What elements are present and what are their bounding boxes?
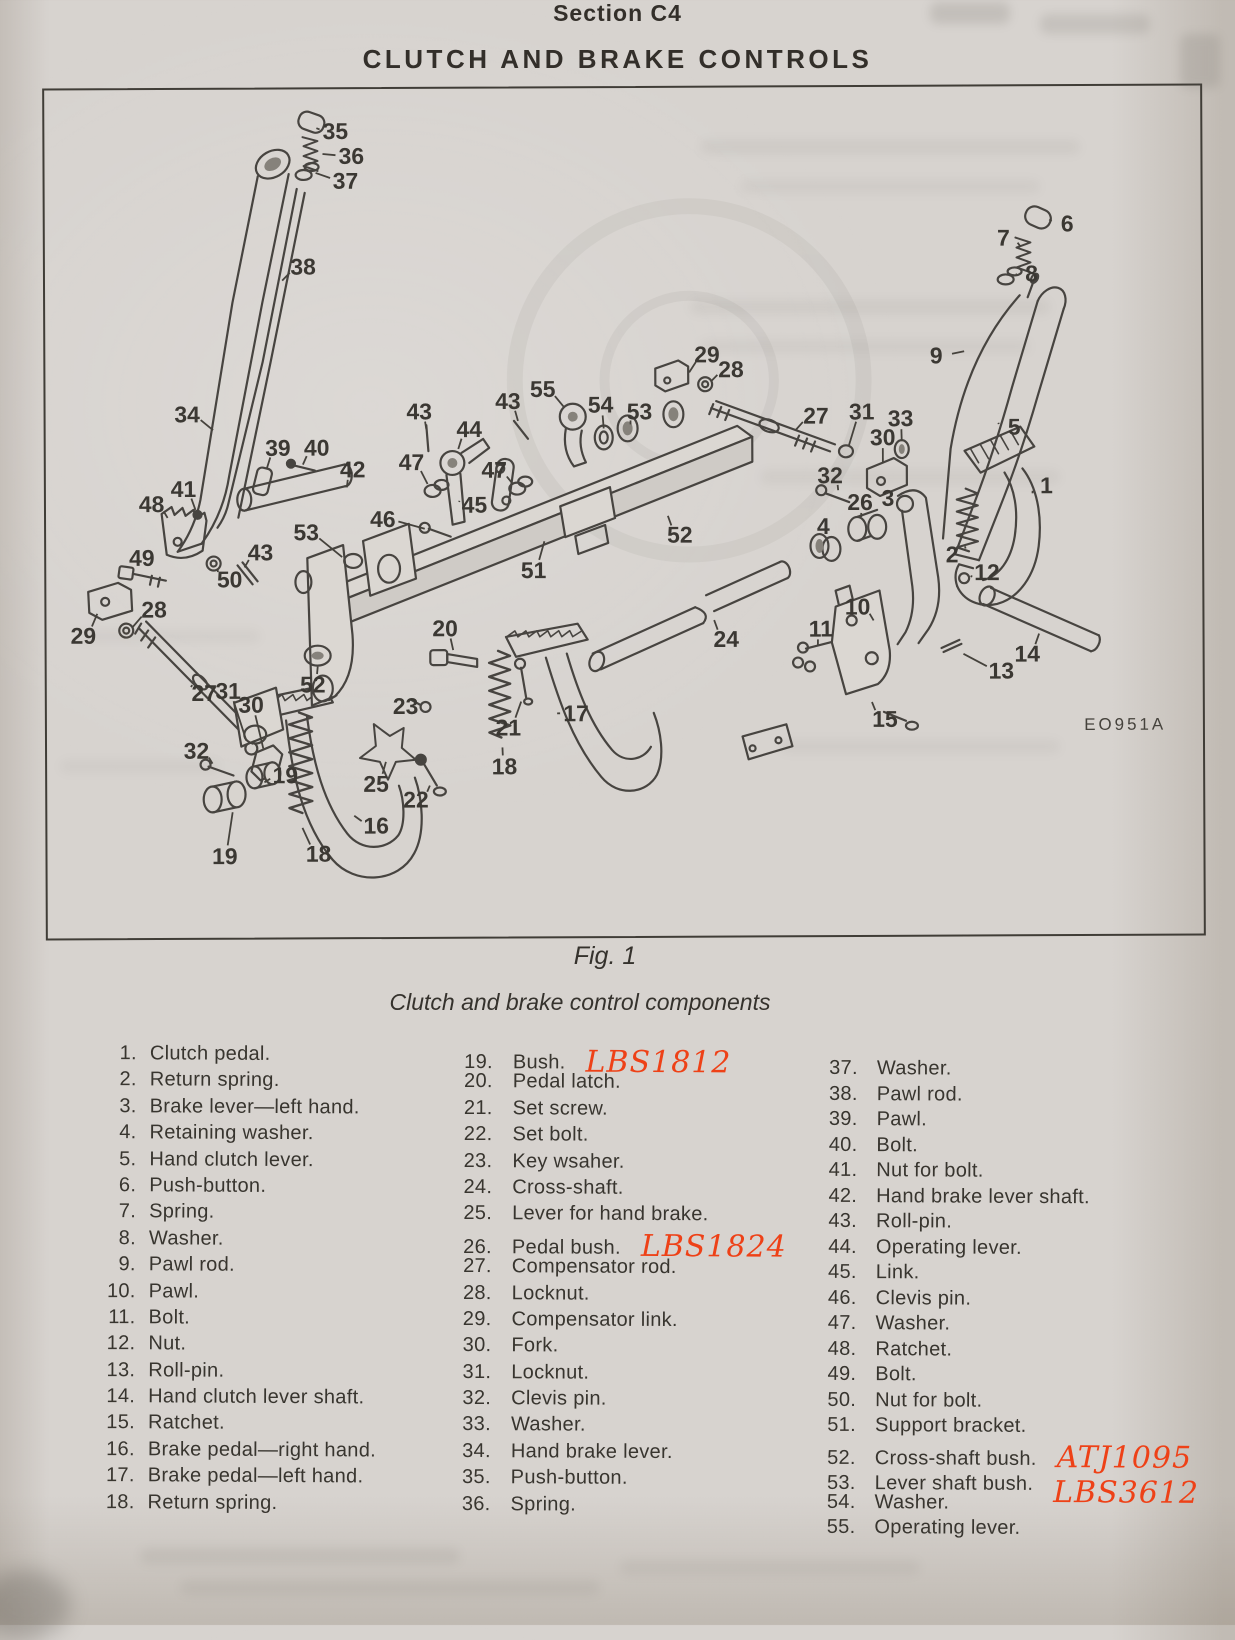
part-label: Lever for hand brake. <box>512 1203 709 1227</box>
handwritten-part-code: LBS1812 <box>585 1048 731 1079</box>
part-label: Pawl. <box>877 1108 928 1131</box>
part-number: 2. <box>91 1068 137 1091</box>
parts-item: 32.Clevis pin. <box>445 1387 786 1415</box>
part-label: Compensator link. <box>511 1308 677 1332</box>
parts-item: 38.Pawl rod. <box>812 1082 1202 1110</box>
part-number: 45. <box>811 1261 857 1284</box>
part-number: 30. <box>445 1334 491 1357</box>
part-label: Retaining washer. <box>149 1121 313 1145</box>
part-number: 27. <box>446 1255 492 1278</box>
part-label: Washer. <box>875 1491 950 1514</box>
part-label: Hand brake lever. <box>511 1440 673 1464</box>
part-number: 55. <box>809 1516 855 1539</box>
part-label: Clevis pin. <box>511 1387 607 1411</box>
part-label: Hand brake lever shaft. <box>876 1185 1090 1209</box>
parts-list: 1.Clutch pedal.2.Return spring.3.Brake l… <box>0 0 1235 1631</box>
parts-item: 26.Pedal bush.LBS1824 <box>446 1229 787 1257</box>
part-number: 28. <box>446 1281 492 1304</box>
parts-item: 34.Hand brake lever. <box>445 1440 786 1468</box>
part-label: Return spring. <box>150 1069 280 1093</box>
parts-item: 16.Brake pedal—right hand. <box>89 1438 376 1466</box>
parts-item: 31.Locknut. <box>445 1361 786 1389</box>
part-label: Bolt. <box>875 1363 917 1386</box>
part-number: 25. <box>446 1202 492 1225</box>
part-number: 9. <box>90 1253 136 1276</box>
part-label: Washer. <box>149 1227 224 1250</box>
parts-item: 24.Cross-shaft. <box>446 1176 787 1204</box>
part-number: 42. <box>811 1184 857 1207</box>
part-number: 20. <box>447 1070 493 1093</box>
parts-item: 43.Roll-pin. <box>811 1210 1201 1238</box>
parts-item: 33.Washer. <box>445 1413 786 1441</box>
parts-item: 14.Hand clutch lever shaft. <box>89 1385 376 1413</box>
part-number: 14. <box>89 1385 135 1408</box>
part-number: 31. <box>445 1361 491 1384</box>
part-number: 39. <box>812 1108 858 1131</box>
part-label: Cross-shaft bush. <box>875 1447 1037 1471</box>
part-number: 10. <box>90 1280 136 1303</box>
part-number: 13. <box>89 1359 135 1382</box>
part-label: Washer. <box>877 1057 952 1080</box>
part-number: 40. <box>811 1133 857 1156</box>
part-number: 37. <box>812 1057 858 1080</box>
handwritten-part-code: ATJ1095 <box>1057 1443 1193 1474</box>
part-label: Support bracket. <box>875 1414 1027 1438</box>
parts-item: 10.Pawl. <box>90 1280 377 1308</box>
parts-item: 37.Washer. <box>812 1057 1202 1085</box>
part-label: Set screw. <box>513 1097 608 1120</box>
parts-item: 2.Return spring. <box>91 1068 378 1096</box>
parts-item: 4.Retaining washer. <box>90 1121 377 1149</box>
part-label: Nut for bolt. <box>876 1159 983 1183</box>
part-label: Cross-shaft. <box>512 1176 624 1200</box>
parts-item: 49.Bolt. <box>810 1363 1200 1391</box>
part-number: 54. <box>810 1490 856 1513</box>
part-number: 23. <box>446 1149 492 1172</box>
part-number: 12. <box>89 1332 135 1355</box>
part-number: 16. <box>89 1438 135 1461</box>
part-number: 46. <box>811 1286 857 1309</box>
parts-item: 55.Operating lever. <box>809 1516 1199 1544</box>
parts-item: 51.Support bracket. <box>810 1414 1200 1442</box>
part-number: 33. <box>445 1413 491 1436</box>
part-label: Pawl. <box>149 1280 200 1303</box>
parts-item: 8.Washer. <box>90 1227 377 1255</box>
part-number: 51. <box>810 1414 856 1437</box>
part-number: 24. <box>446 1176 492 1199</box>
parts-item: 6.Push-button. <box>90 1174 377 1202</box>
parts-item: 23.Key wsaher. <box>446 1149 787 1177</box>
parts-item: 18.Return spring. <box>89 1491 376 1519</box>
part-number: 47. <box>810 1312 856 1335</box>
part-label: Clutch pedal. <box>150 1042 271 1066</box>
part-label: Operating lever. <box>874 1516 1020 1540</box>
part-number: 4. <box>90 1121 136 1144</box>
part-number: 52. <box>810 1446 856 1469</box>
parts-item: 19.Bush.LBS1812 <box>447 1044 788 1072</box>
parts-item: 13.Roll-pin. <box>89 1359 376 1387</box>
parts-item: 30.Fork. <box>445 1334 786 1362</box>
parts-item: 29.Compensator link. <box>445 1308 786 1336</box>
part-number: 7. <box>90 1200 136 1223</box>
part-label: Nut for bolt. <box>875 1389 982 1413</box>
parts-item: 17.Brake pedal—left hand. <box>89 1464 376 1492</box>
part-number: 49. <box>810 1363 856 1386</box>
parts-item: 5.Hand clutch lever. <box>90 1148 377 1176</box>
parts-item: 22.Set bolt. <box>446 1123 787 1151</box>
part-label: Fork. <box>511 1335 558 1358</box>
part-number: 34. <box>445 1440 491 1463</box>
part-number: 48. <box>810 1337 856 1360</box>
parts-item: 25.Lever for hand brake. <box>446 1202 787 1230</box>
part-number: 41. <box>811 1159 857 1182</box>
parts-item: 28.Locknut. <box>446 1281 787 1309</box>
part-label: Clevis pin. <box>876 1287 972 1311</box>
parts-item: 15.Ratchet. <box>89 1411 376 1439</box>
handwritten-part-code: LBS3612 <box>1053 1478 1199 1509</box>
part-label: Pawl rod. <box>877 1083 963 1106</box>
part-number: 18. <box>89 1491 135 1514</box>
handwritten-part-code: LBS1824 <box>641 1232 787 1263</box>
part-number: 32. <box>445 1387 491 1410</box>
parts-item: 44.Operating lever. <box>811 1235 1201 1263</box>
part-number: 35. <box>445 1466 491 1489</box>
part-number: 43. <box>811 1210 857 1233</box>
part-label: Roll-pin. <box>148 1359 224 1382</box>
part-number: 50. <box>810 1388 856 1411</box>
parts-item: 46.Clevis pin. <box>811 1286 1201 1314</box>
parts-item: 40.Bolt. <box>811 1133 1201 1161</box>
parts-item: 41.Nut for bolt. <box>811 1159 1201 1187</box>
part-label: Ratchet. <box>875 1338 952 1361</box>
part-label: Brake pedal—right hand. <box>148 1438 376 1462</box>
scanned-manual-page: { "header": { "section": "Section C4", "… <box>0 0 1235 1625</box>
part-label: Spring. <box>511 1493 577 1516</box>
parts-column-2: 19.Bush.LBS181220.Pedal latch.21.Set scr… <box>444 1044 787 1521</box>
part-label: Locknut. <box>511 1361 589 1384</box>
part-label: Roll-pin. <box>876 1210 952 1233</box>
part-label: Hand clutch lever shaft. <box>148 1385 364 1409</box>
part-number: 36. <box>445 1493 491 1516</box>
part-label: Bolt. <box>876 1134 918 1157</box>
part-label: Hand clutch lever. <box>149 1148 313 1172</box>
part-label: Key wsaher. <box>512 1150 624 1174</box>
parts-item: 21.Set screw. <box>447 1097 788 1125</box>
part-number: 8. <box>90 1227 136 1250</box>
parts-item: 3.Brake lever—left hand. <box>91 1095 378 1123</box>
parts-item: 42.Hand brake lever shaft. <box>811 1184 1201 1212</box>
part-label: Spring. <box>149 1201 215 1224</box>
part-label: Pawl rod. <box>149 1253 235 1276</box>
part-number: 5. <box>90 1148 136 1171</box>
parts-column-3: 37.Washer.38.Pawl rod.39.Pawl.40.Bolt.41… <box>809 1057 1201 1544</box>
part-label: Brake lever—left hand. <box>150 1095 360 1119</box>
part-label: Brake pedal—left hand. <box>148 1465 364 1489</box>
parts-item: 45.Link. <box>811 1261 1201 1289</box>
part-number: 44. <box>811 1235 857 1258</box>
part-label: Washer. <box>875 1312 950 1335</box>
part-number: 1. <box>91 1042 137 1065</box>
part-label: Nut. <box>148 1333 186 1356</box>
parts-item: 9.Pawl rod. <box>90 1253 377 1281</box>
part-label: Link. <box>876 1261 920 1284</box>
part-number: 3. <box>91 1095 137 1118</box>
part-number: 38. <box>812 1082 858 1105</box>
part-label: Bolt. <box>148 1306 190 1329</box>
part-label: Push-button. <box>149 1174 266 1198</box>
parts-item: 48.Ratchet. <box>810 1337 1200 1365</box>
parts-item: 1.Clutch pedal. <box>91 1042 378 1070</box>
parts-item: 50.Nut for bolt. <box>810 1388 1200 1416</box>
part-number: 29. <box>445 1308 491 1331</box>
part-label: Ratchet. <box>148 1412 225 1435</box>
part-number: 11. <box>89 1306 135 1329</box>
parts-item: 47.Washer. <box>810 1312 1200 1340</box>
parts-column-1: 1.Clutch pedal.2.Return spring.3.Brake l… <box>89 1042 379 1519</box>
part-number: 6. <box>90 1174 136 1197</box>
part-number: 17. <box>89 1464 135 1487</box>
parts-item: 11.Bolt. <box>89 1306 376 1334</box>
parts-item: 7.Spring. <box>90 1200 377 1228</box>
part-label: Locknut. <box>512 1282 590 1305</box>
parts-item: 12.Nut. <box>89 1332 376 1360</box>
part-number: 22. <box>446 1123 492 1146</box>
parts-item: 36.Spring. <box>444 1493 785 1521</box>
part-number: 15. <box>89 1411 135 1434</box>
part-number: 21. <box>447 1097 493 1120</box>
part-label: Return spring. <box>148 1491 278 1515</box>
part-label: Washer. <box>511 1414 586 1437</box>
part-label: Operating lever. <box>876 1236 1022 1260</box>
part-label: Push-button. <box>511 1466 628 1490</box>
parts-item: 35.Push-button. <box>445 1466 786 1494</box>
parts-item: 39.Pawl. <box>812 1108 1202 1136</box>
part-label: Set bolt. <box>512 1123 588 1146</box>
parts-item: 52.Cross-shaft bush.ATJ1095 <box>810 1439 1200 1467</box>
